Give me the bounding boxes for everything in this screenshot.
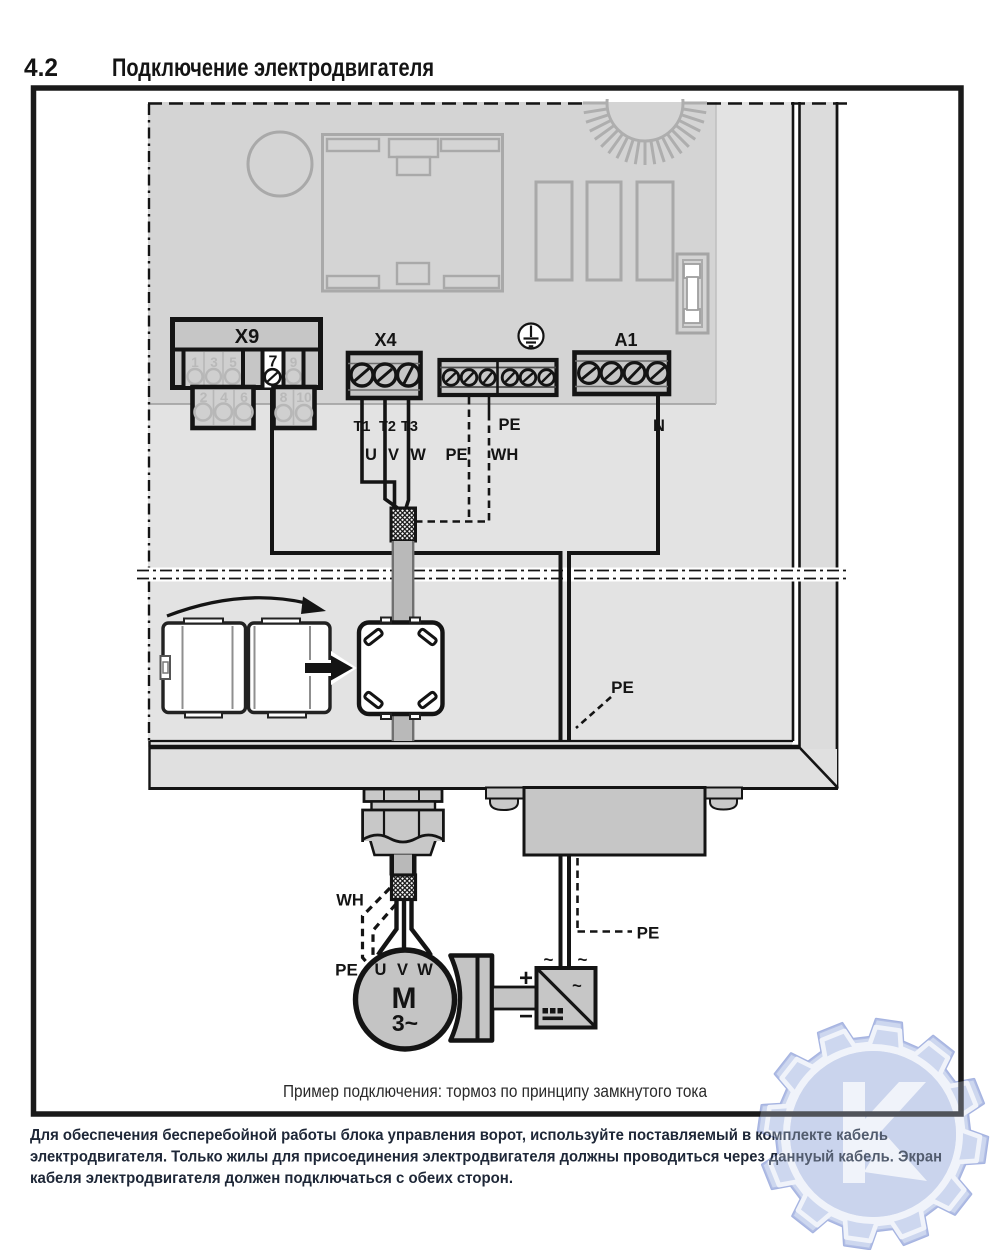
svg-text:PE: PE — [611, 678, 634, 697]
svg-text:A1: A1 — [614, 330, 637, 350]
svg-text:6: 6 — [240, 389, 248, 405]
svg-text:Подключение электродвигателя: Подключение электродвигателя — [112, 54, 434, 82]
svg-text:W: W — [410, 446, 426, 464]
svg-text:V: V — [388, 446, 399, 464]
svg-text:PE: PE — [498, 416, 520, 434]
svg-text:T3: T3 — [401, 419, 418, 435]
svg-text:−: − — [519, 1003, 533, 1030]
svg-text:3~: 3~ — [392, 1010, 418, 1036]
svg-text:T2: T2 — [379, 419, 396, 435]
svg-text:W: W — [417, 961, 433, 979]
svg-text:кабеля электродвигателя должен: кабеля электродвигателя должен подключат… — [30, 1170, 513, 1187]
svg-text:WH: WH — [491, 446, 519, 464]
svg-text:Пример подключения: тормоз по: Пример подключения: тормоз по принципу з… — [283, 1081, 707, 1101]
svg-text:5: 5 — [229, 355, 237, 370]
svg-text:10: 10 — [296, 389, 312, 405]
svg-text:4.2: 4.2 — [24, 54, 58, 82]
svg-text:+: + — [519, 965, 533, 992]
svg-text:X4: X4 — [374, 330, 396, 350]
svg-text:U: U — [375, 961, 387, 979]
svg-text:3: 3 — [210, 355, 218, 370]
svg-text:4: 4 — [220, 389, 228, 405]
svg-text:~: ~ — [572, 977, 582, 995]
svg-text:V: V — [397, 961, 408, 979]
svg-text:1: 1 — [191, 355, 199, 370]
svg-text:9: 9 — [290, 355, 298, 370]
svg-text:U: U — [365, 446, 377, 464]
svg-text:8: 8 — [280, 389, 288, 405]
svg-text:PE: PE — [445, 446, 467, 464]
svg-text:PE: PE — [637, 924, 660, 943]
svg-text:T1: T1 — [354, 419, 371, 435]
svg-text:PE: PE — [335, 961, 358, 980]
svg-text:X9: X9 — [235, 326, 259, 348]
svg-text:N: N — [653, 417, 665, 435]
svg-text:2: 2 — [200, 389, 208, 405]
svg-text:WH: WH — [336, 892, 364, 910]
